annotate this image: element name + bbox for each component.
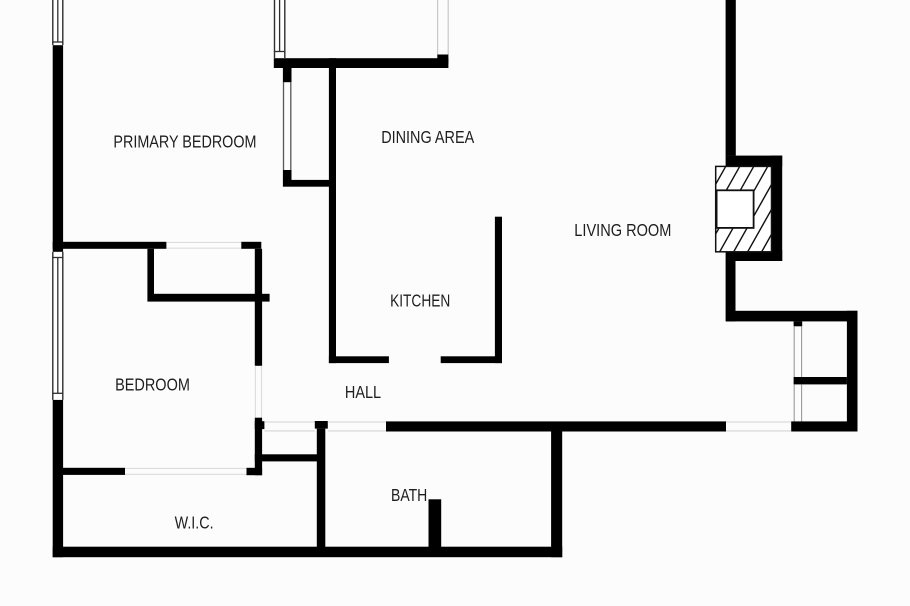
svg-text:LIVING ROOM: LIVING ROOM [574,220,671,240]
svg-text:KITCHEN: KITCHEN [390,291,450,311]
svg-text:PRIMARY BEDROOM: PRIMARY BEDROOM [113,132,256,152]
svg-text:BEDROOM: BEDROOM [115,375,190,395]
svg-text:DINING AREA: DINING AREA [381,127,474,147]
svg-text:W.I.C.: W.I.C. [175,512,214,532]
svg-text:BATH: BATH [391,485,427,505]
svg-text:HALL: HALL [345,382,381,402]
